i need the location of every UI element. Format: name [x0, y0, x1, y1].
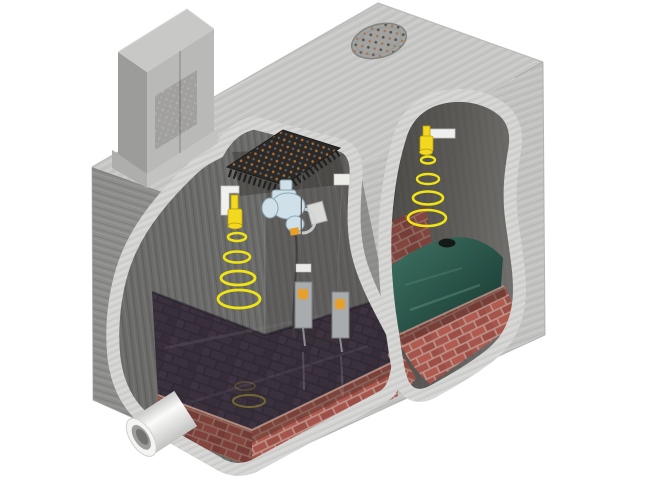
probe-reflection-1	[303, 352, 304, 390]
cutaway-scene	[0, 0, 667, 500]
sensor-neck	[231, 195, 238, 209]
cabinet-left-face	[118, 52, 147, 174]
sensor-face	[420, 149, 433, 155]
probe-2-orange-marker	[335, 299, 345, 309]
right-chamber-cutaway	[385, 95, 520, 395]
probe-1-plate	[295, 282, 312, 328]
pump-body-cap	[280, 180, 292, 190]
sensor-face	[228, 223, 242, 229]
illustration-stage	[0, 0, 667, 500]
divider-wall-bracket	[334, 174, 350, 185]
probe-2-plate	[332, 292, 349, 338]
pump-body-flange	[262, 198, 278, 218]
outlet-hole	[439, 239, 456, 248]
probe-1-cap	[296, 264, 311, 272]
probe-1-orange-marker	[298, 289, 308, 299]
